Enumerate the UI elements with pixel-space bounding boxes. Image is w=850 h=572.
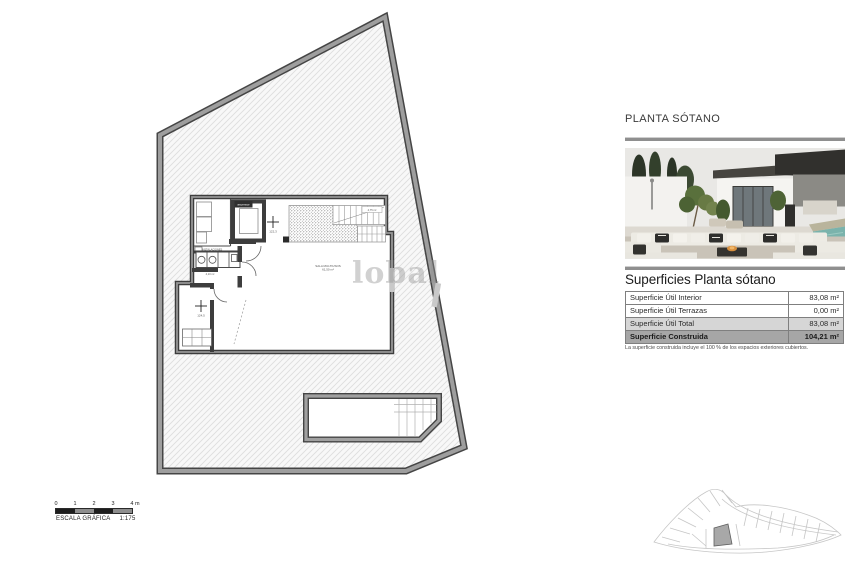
scale-tick: 4 m xyxy=(130,501,139,507)
highlighted-parcel xyxy=(714,524,732,546)
scale-tick: 3 xyxy=(111,501,114,507)
site-location-map xyxy=(648,482,848,562)
main-room-area: 61,50 m² xyxy=(322,268,334,272)
lift-label: ascensor xyxy=(237,203,249,207)
row-value: 83,08 m² xyxy=(789,318,844,331)
pool xyxy=(306,396,439,440)
stairs-area-label: 4,75 m² xyxy=(368,208,377,212)
villa-photo-art xyxy=(625,148,845,259)
row-label: Superficie Útil Terrazas xyxy=(626,305,789,318)
window-gap xyxy=(390,268,394,292)
table-row: Superficie Útil Terrazas 0,00 m² xyxy=(626,305,844,318)
villa-photo xyxy=(625,148,845,259)
divider-top xyxy=(625,137,845,141)
scale-tick: 0 xyxy=(54,501,57,507)
lift-shaft: ascensor xyxy=(229,201,264,244)
table-row: Superficie Útil Total 83,08 m² xyxy=(626,318,844,331)
level-marker-1: 122,3 xyxy=(269,230,277,234)
row-value: 83,08 m² xyxy=(789,292,844,305)
laundry-area: 4,10 m² xyxy=(206,272,215,276)
column xyxy=(283,237,289,243)
row-label: Superficie Útil Total xyxy=(626,318,789,331)
divider-bottom xyxy=(625,266,845,270)
scale-tick: 1 xyxy=(73,501,76,507)
row-label: Superficie Útil Interior xyxy=(626,292,789,305)
scale-caption: ESCALA GRÁFICA xyxy=(56,516,110,522)
table-row: Superficie Construida 104,21 m² xyxy=(626,331,844,344)
plan-title: PLANTA SÓTANO xyxy=(625,113,720,125)
laundry-counter xyxy=(194,251,242,268)
scale-bar: 0 1 2 3 4 m ESCALA GRÁFICA1:175 xyxy=(56,501,166,527)
scale-tick: 2 xyxy=(92,501,95,507)
row-value: 104,21 m² xyxy=(789,331,844,344)
table-footnote: La superficie construida incluye el 100 … xyxy=(625,345,845,351)
row-label: Superficie Construida xyxy=(626,331,789,344)
scale-ratio: 1:175 xyxy=(119,516,135,522)
scale-bar-graphic xyxy=(56,509,132,513)
level-marker-2: 124,5 xyxy=(197,314,205,318)
surface-table: Superficie Útil Interior 83,08 m² Superf… xyxy=(625,291,844,344)
row-value: 0,00 m² xyxy=(789,305,844,318)
table-row: Superficie Útil Interior 83,08 m² xyxy=(626,292,844,305)
floor-plan-drawing: INSTALACIONES 4,50 m² ascensor 4,75 m² xyxy=(0,0,600,572)
surfaces-heading: Superficies Planta sótano xyxy=(625,272,776,287)
